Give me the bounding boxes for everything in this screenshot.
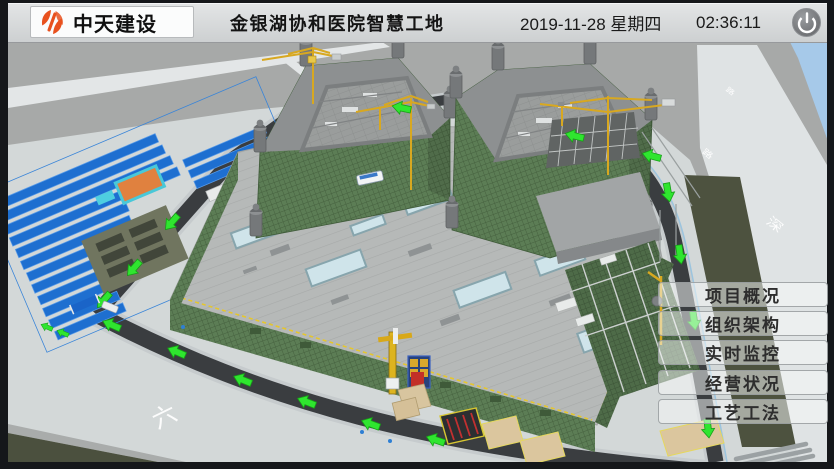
app-window: 六 深 路 路 xyxy=(0,0,834,469)
menu-item-live-monitoring[interactable]: 实时监控 xyxy=(658,340,828,365)
brand-panel: 中天建设 xyxy=(30,6,194,38)
page-title: 金银湖协和医院智慧工地 xyxy=(230,3,445,42)
header-bar: 中天建设 金银湖协和医院智慧工地 2019-11-28 星期四 02:36:11 xyxy=(8,3,827,43)
menu-item-organization[interactable]: 组织架构 xyxy=(658,311,828,336)
date-display: 2019-11-28 星期四 xyxy=(520,3,661,42)
menu-item-craft-methods[interactable]: 工艺工法 xyxy=(658,399,828,424)
power-button[interactable] xyxy=(792,8,821,37)
menu-item-business-status[interactable]: 经营状况 xyxy=(658,370,828,395)
brand-name: 中天建设 xyxy=(73,8,157,37)
power-icon xyxy=(794,10,820,36)
time-display: 02:36:11 xyxy=(696,3,761,42)
company-logo-icon xyxy=(38,8,66,36)
menu-item-project-overview[interactable]: 项目概况 xyxy=(658,282,828,307)
